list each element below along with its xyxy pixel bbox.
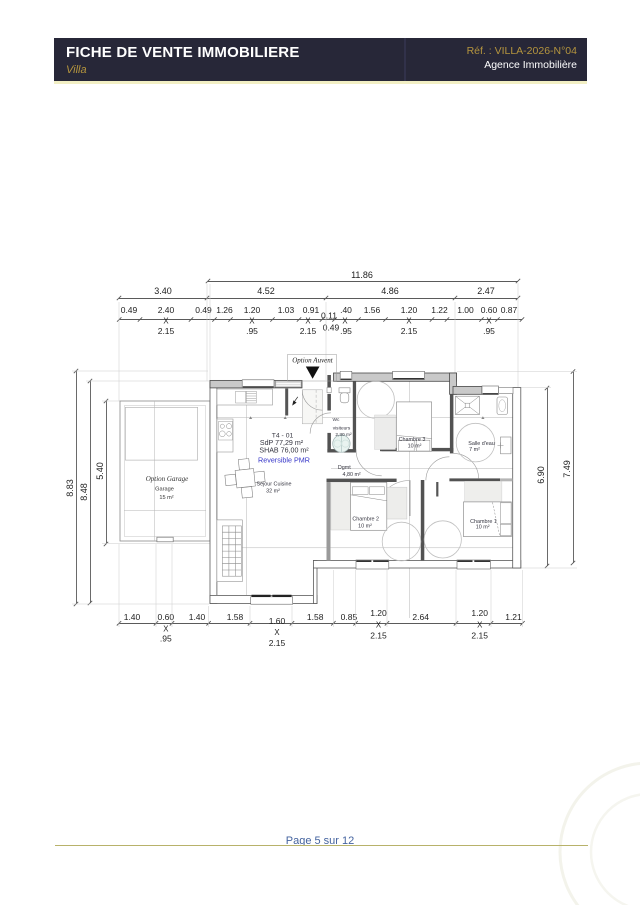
svg-text:10 m²: 10 m² [408,444,422,450]
svg-text:0.60: 0.60 [481,305,498,315]
svg-text:2.15: 2.15 [300,326,317,336]
svg-text:0.87: 0.87 [501,305,518,315]
svg-text:2.15: 2.15 [471,631,488,641]
svg-text:8.48: 8.48 [79,483,89,501]
svg-text:7.49: 7.49 [562,460,572,478]
svg-text:Garage: Garage [155,487,174,493]
svg-text:2.64: 2.64 [412,612,429,622]
svg-text:Dgmt: Dgmt [338,465,351,471]
svg-text:X: X [163,317,169,326]
svg-text:1.56: 1.56 [364,305,381,315]
svg-text:X: X [376,621,382,630]
svg-text:1.20: 1.20 [370,608,387,618]
svg-text:2,30 m²: 2,30 m² [335,432,352,438]
svg-text:11.86: 11.86 [351,270,373,280]
svg-text:Reversible PMR: Reversible PMR [258,456,310,465]
svg-text:.95: .95 [483,326,495,336]
svg-text:X: X [305,317,311,326]
svg-text:0.49: 0.49 [121,305,138,315]
svg-text:Option Auvent: Option Auvent [292,357,334,365]
svg-text:1.58: 1.58 [307,612,324,622]
svg-text:X: X [406,317,412,326]
svg-text:2.15: 2.15 [370,631,387,641]
svg-text:4.52: 4.52 [257,286,275,296]
svg-text:1.21: 1.21 [505,612,522,622]
svg-text:5.40: 5.40 [95,462,105,480]
svg-text:0.49: 0.49 [323,323,340,333]
svg-text:1.40: 1.40 [124,612,141,622]
svg-text:1.03: 1.03 [278,305,295,315]
svg-text:6.90: 6.90 [536,466,546,484]
svg-text:visiteurs: visiteurs [333,426,351,432]
svg-text:3.40: 3.40 [154,286,172,296]
svg-text:8.83: 8.83 [65,479,75,497]
svg-text:.95: .95 [160,634,172,644]
svg-text:1.20: 1.20 [471,608,488,618]
svg-text:7 m²: 7 m² [469,447,480,453]
svg-text:X: X [342,317,348,326]
svg-text:.40: .40 [340,305,352,315]
svg-text:1.60: 1.60 [269,616,286,626]
svg-text:4.86: 4.86 [381,286,399,296]
svg-text:2.15: 2.15 [158,326,175,336]
svg-text:1.00: 1.00 [457,305,474,315]
svg-text:Chambre 2: Chambre 2 [352,517,379,523]
svg-text:1.40: 1.40 [189,612,206,622]
svg-text:X: X [249,317,255,326]
svg-text:2.15: 2.15 [269,638,286,648]
svg-text:0.85: 0.85 [341,612,358,622]
svg-text:2.47: 2.47 [477,286,495,296]
svg-text:2.15: 2.15 [401,326,418,336]
svg-text:32 m²: 32 m² [266,489,280,495]
svg-text:Sejour Cuisine: Sejour Cuisine [256,482,291,488]
svg-text:4,80 m²: 4,80 m² [342,472,360,478]
svg-text:Wc: Wc [333,417,341,423]
svg-text:X: X [486,317,492,326]
svg-text:X: X [477,621,483,630]
svg-text:1.20: 1.20 [244,305,261,315]
svg-text:10 m²: 10 m² [476,525,490,531]
svg-text:0.11: 0.11 [321,311,337,321]
svg-text:0.91: 0.91 [303,305,320,315]
svg-text:Chambre 3: Chambre 3 [399,437,426,443]
svg-text:.95: .95 [246,326,258,336]
svg-text:Option Garage: Option Garage [146,475,189,483]
svg-text:10 m²: 10 m² [358,524,372,530]
svg-text:2.40: 2.40 [158,305,175,315]
svg-text:1.22: 1.22 [431,305,448,315]
svg-text:1.26: 1.26 [216,305,233,315]
svg-text:X: X [163,625,169,634]
svg-text:X: X [274,628,280,637]
svg-text:15 m²: 15 m² [159,495,173,501]
svg-text:0.49: 0.49 [195,305,212,315]
svg-text:SHAB 76,00 m²: SHAB 76,00 m² [259,447,309,455]
svg-text:1.20: 1.20 [401,305,418,315]
svg-text:1.58: 1.58 [227,612,244,622]
svg-text:.95: .95 [340,326,352,336]
